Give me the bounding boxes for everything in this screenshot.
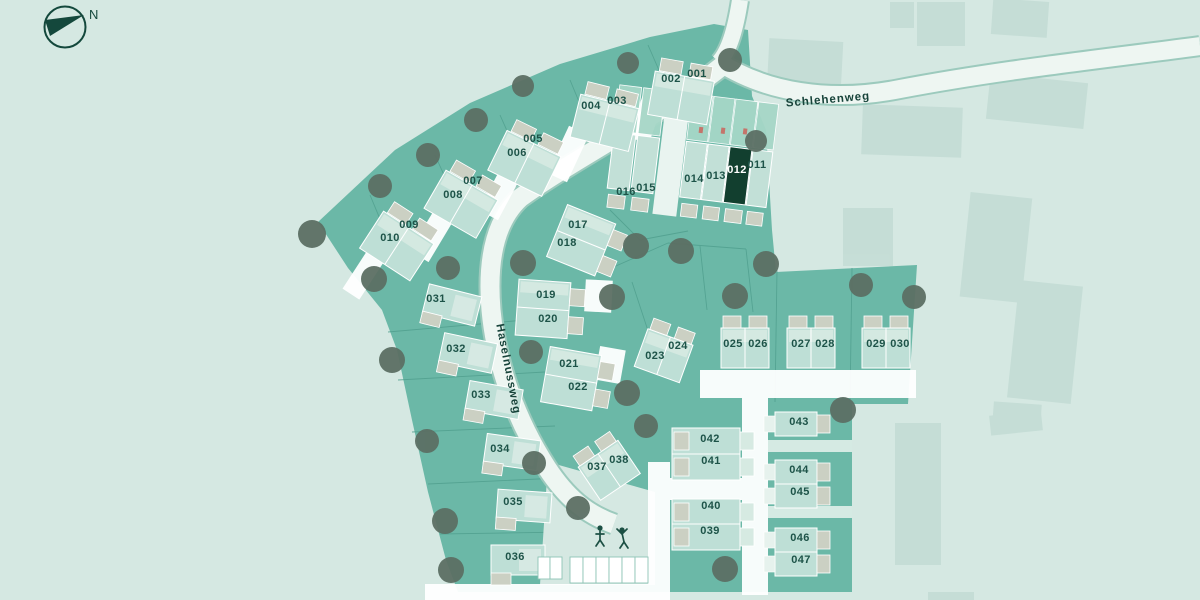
plot-019-label[interactable]: 019 [536, 289, 556, 301]
plot-023-label[interactable]: 023 [645, 350, 665, 362]
terrace [631, 197, 649, 212]
existing-building [861, 104, 963, 157]
tree-icon [415, 429, 439, 453]
compass-north-label: N [89, 7, 98, 22]
plot-027-label[interactable]: 027 [791, 338, 811, 350]
plot-010-label[interactable]: 010 [380, 232, 400, 244]
path [700, 370, 916, 398]
terrace [702, 206, 719, 221]
plot-028-label[interactable]: 028 [815, 338, 835, 350]
terrace [680, 203, 697, 218]
plot-025-label[interactable]: 025 [723, 338, 743, 350]
tree-icon [379, 347, 405, 373]
plot-044-label[interactable]: 044 [789, 464, 809, 476]
plot-026-label[interactable]: 026 [748, 338, 768, 350]
site-plan-map: Schlehenweg Haselnussweg 001002003004005… [0, 0, 1200, 600]
site-plan-svg: Schlehenweg Haselnussweg 001002003004005… [0, 0, 1200, 600]
tree-icon [712, 556, 738, 582]
plot-039-label[interactable]: 039 [700, 525, 720, 537]
plot-003-label[interactable]: 003 [607, 95, 627, 107]
plot-006-label[interactable]: 006 [507, 147, 527, 159]
tree-icon [634, 414, 658, 438]
plot-004-label[interactable]: 004 [581, 100, 601, 112]
plot-015-label[interactable]: 015 [636, 182, 656, 194]
parcel-gap [768, 440, 852, 452]
plot-047-label[interactable]: 047 [791, 554, 811, 566]
plot-030-label[interactable]: 030 [890, 338, 910, 350]
plot-016-label[interactable]: 016 [616, 186, 636, 198]
tree-icon [718, 48, 742, 72]
plot-035-label[interactable]: 035 [503, 496, 523, 508]
plot-031-label[interactable]: 031 [426, 293, 446, 305]
existing-building [991, 0, 1049, 38]
parking-stall [609, 557, 622, 583]
plot-008-label[interactable]: 008 [443, 189, 463, 201]
marker [743, 128, 748, 134]
tree-icon [849, 273, 873, 297]
plot-038-label[interactable]: 038 [609, 454, 629, 466]
plot-009-label[interactable]: 009 [399, 219, 419, 231]
tree-icon [722, 283, 748, 309]
terrace [724, 209, 742, 224]
tree-icon [566, 496, 590, 520]
plot-045-label[interactable]: 045 [790, 486, 810, 498]
parking-stall [596, 557, 609, 583]
plot-007-label[interactable]: 007 [463, 175, 483, 187]
plot-022-label[interactable]: 022 [568, 381, 588, 393]
tree-icon [416, 143, 440, 167]
tree-icon [902, 285, 926, 309]
parking-stall [635, 557, 648, 583]
existing-building [928, 592, 974, 600]
plot-046-label[interactable]: 046 [790, 532, 810, 544]
tree-icon [368, 174, 392, 198]
existing-building [895, 423, 941, 565]
plot-042-label[interactable]: 042 [700, 433, 720, 445]
tree-icon [614, 380, 640, 406]
plot-037-label[interactable]: 037 [587, 461, 607, 473]
plot-033-label[interactable]: 033 [471, 389, 491, 401]
marker [699, 127, 704, 133]
plot-002-label[interactable]: 002 [661, 73, 681, 85]
existing-building [843, 208, 893, 266]
plot-024-label[interactable]: 024 [668, 340, 688, 352]
parking-stall [583, 557, 596, 583]
plot-029-label[interactable]: 029 [866, 338, 886, 350]
tree-icon [753, 251, 779, 277]
tree-icon [438, 557, 464, 583]
tree-icon [623, 233, 649, 259]
tree-icon [464, 108, 488, 132]
path [660, 478, 744, 500]
terrace [746, 211, 763, 226]
existing-building [1007, 280, 1083, 404]
path [425, 584, 668, 600]
tree-icon [522, 451, 546, 475]
tree-icon [298, 220, 326, 248]
tree-icon [512, 75, 534, 97]
plot-041-label[interactable]: 041 [701, 455, 721, 467]
plot-036-label[interactable]: 036 [505, 551, 525, 563]
existing-building [890, 2, 914, 28]
tree-icon [668, 238, 694, 264]
tree-icon [830, 397, 856, 423]
tree-icon [361, 266, 387, 292]
plot-021-label[interactable]: 021 [559, 358, 579, 370]
plot-034-label[interactable]: 034 [490, 443, 510, 455]
plot-005-label[interactable]: 005 [523, 133, 543, 145]
plot-032-label[interactable]: 032 [446, 343, 466, 355]
plot-001-label[interactable]: 001 [687, 68, 707, 80]
plot-013-label[interactable]: 013 [706, 170, 726, 182]
tree-icon [745, 130, 767, 152]
tree-icon [617, 52, 639, 74]
plot-014-label[interactable]: 014 [684, 173, 704, 185]
marker [721, 128, 726, 134]
tree-icon [510, 250, 536, 276]
plot-017-label[interactable]: 017 [568, 219, 588, 231]
parking-row [538, 557, 648, 583]
plot-012-label[interactable]: 012 [727, 164, 747, 176]
plot-040-label[interactable]: 040 [701, 500, 721, 512]
tree-icon [432, 508, 458, 534]
plot-020-label[interactable]: 020 [538, 313, 558, 325]
parking-stall [538, 557, 550, 579]
existing-building [917, 2, 965, 46]
tree-icon [519, 340, 543, 364]
parking-stall [570, 557, 583, 583]
tree-icon [436, 256, 460, 280]
plot-018-label[interactable]: 018 [557, 237, 577, 249]
plot-043-label[interactable]: 043 [789, 416, 809, 428]
parking-stall [550, 557, 562, 579]
parking-stall [622, 557, 635, 583]
tree-icon [599, 284, 625, 310]
plot-011-label[interactable]: 011 [748, 159, 767, 171]
